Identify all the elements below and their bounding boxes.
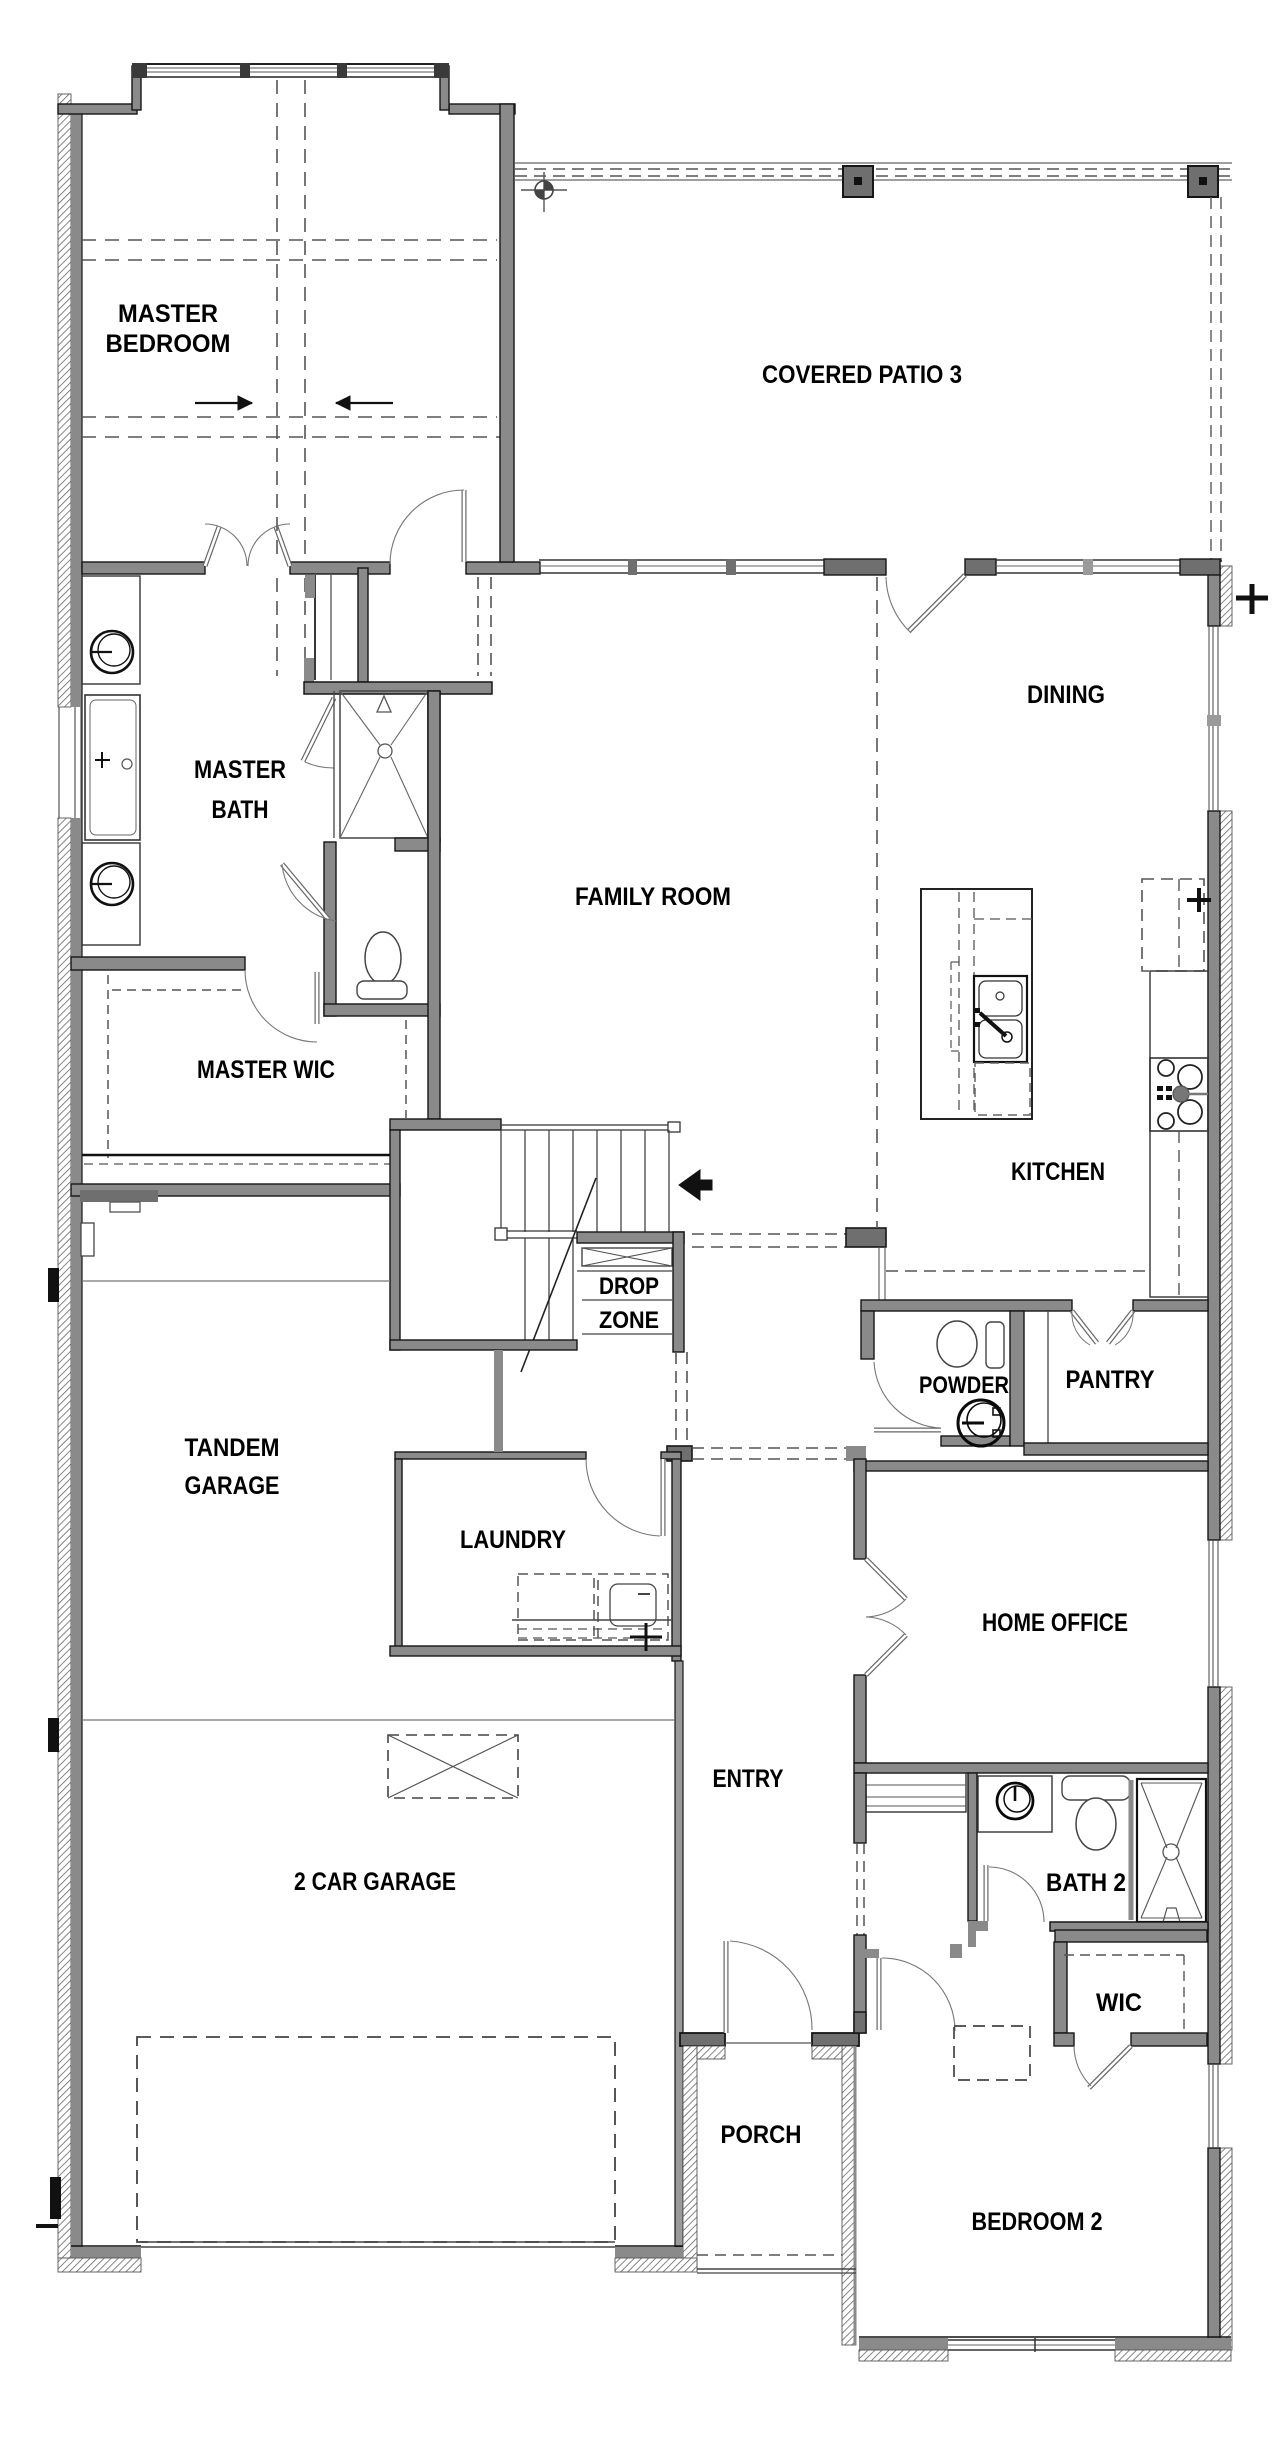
- svg-text:TANDEM: TANDEM: [185, 1434, 280, 1462]
- svg-text:MASTER: MASTER: [194, 756, 286, 784]
- svg-text:COVERED PATIO 3: COVERED PATIO 3: [762, 361, 962, 389]
- svg-text:BATH 2: BATH 2: [1046, 1869, 1126, 1897]
- svg-text:MASTER WIC: MASTER WIC: [197, 1056, 335, 1084]
- svg-text:KITCHEN: KITCHEN: [1011, 1158, 1105, 1186]
- svg-text:PORCH: PORCH: [721, 2121, 802, 2149]
- svg-text:GARAGE: GARAGE: [185, 1472, 280, 1500]
- svg-text:ZONE: ZONE: [599, 1307, 659, 1334]
- svg-text:BEDROOM 2: BEDROOM 2: [972, 2208, 1103, 2236]
- svg-text:HOME OFFICE: HOME OFFICE: [982, 1609, 1128, 1637]
- svg-text:LAUNDRY: LAUNDRY: [460, 1526, 566, 1554]
- svg-text:FAMILY ROOM: FAMILY ROOM: [575, 883, 731, 911]
- svg-text:BEDROOM: BEDROOM: [106, 330, 231, 358]
- svg-text:DINING: DINING: [1027, 681, 1105, 709]
- svg-text:WIC: WIC: [1096, 1989, 1142, 2017]
- svg-text:PANTRY: PANTRY: [1066, 1366, 1155, 1394]
- svg-text:POWDER: POWDER: [919, 1372, 1009, 1399]
- svg-text:2 CAR GARAGE: 2 CAR GARAGE: [294, 1868, 456, 1896]
- svg-text:ENTRY: ENTRY: [713, 1765, 784, 1793]
- svg-text:MASTER: MASTER: [118, 300, 218, 328]
- svg-text:DROP: DROP: [599, 1273, 659, 1300]
- svg-text:BATH: BATH: [212, 796, 269, 824]
